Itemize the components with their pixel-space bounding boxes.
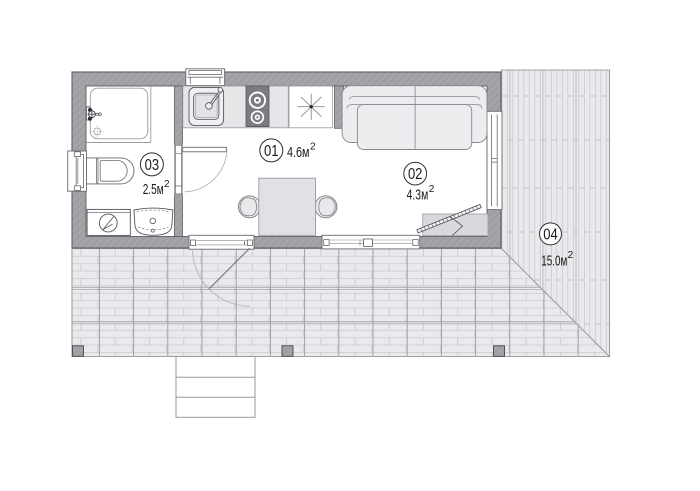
svg-text:03: 03 bbox=[145, 157, 160, 174]
svg-text:02: 02 bbox=[408, 166, 423, 183]
svg-text:15.0м: 15.0м bbox=[541, 253, 567, 269]
svg-text:01: 01 bbox=[264, 143, 279, 160]
svg-text:2: 2 bbox=[310, 142, 316, 153]
svg-text:04: 04 bbox=[543, 227, 558, 244]
svg-text:4.6м: 4.6м bbox=[287, 145, 310, 161]
svg-text:4.3м: 4.3м bbox=[407, 188, 429, 204]
svg-text:2: 2 bbox=[568, 250, 574, 261]
svg-text:2.5м: 2.5м bbox=[143, 182, 164, 198]
svg-text:2: 2 bbox=[164, 179, 170, 190]
svg-text:2: 2 bbox=[429, 184, 435, 195]
